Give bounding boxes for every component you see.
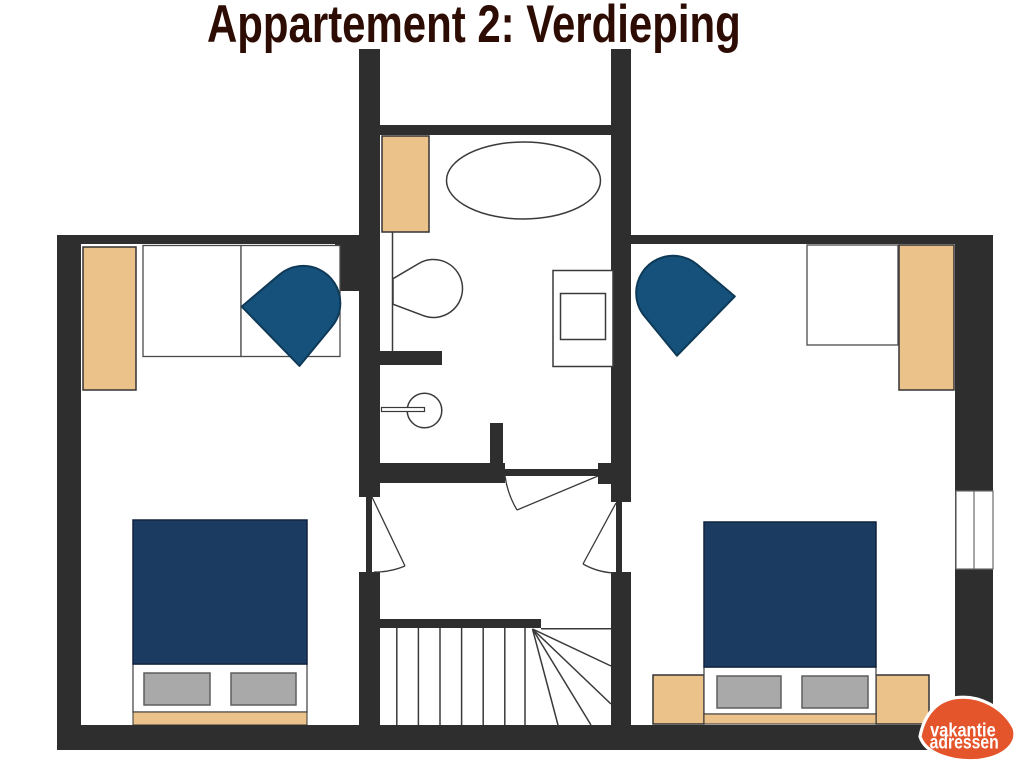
svg-text:adressen: adressen [930, 733, 999, 754]
svg-text:Appartement 2: Verdieping: Appartement 2: Verdieping [207, 0, 741, 54]
